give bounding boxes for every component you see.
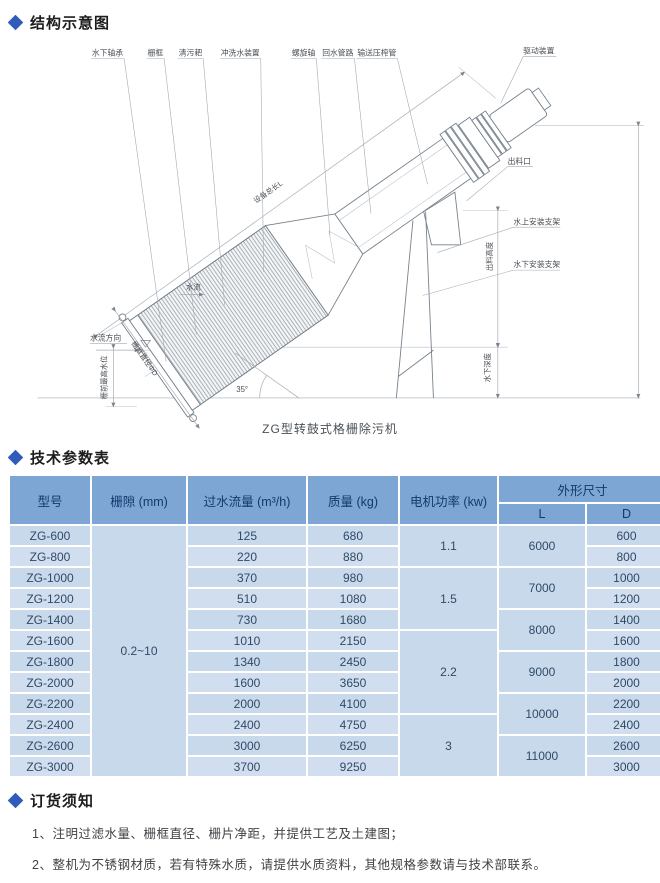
label-flush-water-device: 冲洗水装置	[221, 47, 260, 57]
cell-length: 7000	[499, 568, 585, 608]
dim-underwater-depth-label: 水下深度	[483, 352, 492, 382]
flow-direction-label: 水流方向	[90, 332, 121, 342]
cell-mass: 4100	[308, 694, 398, 713]
cell-model: ZG-600	[10, 526, 90, 545]
reference-lines	[37, 347, 640, 398]
cell-mass: 3650	[308, 673, 398, 692]
label-drive-device: 驱动装置	[523, 46, 554, 56]
cell-diameter: 3000	[587, 757, 660, 776]
section-title-params: 技术参数表	[30, 447, 110, 468]
cell-diameter: 2400	[587, 715, 660, 734]
header-mass: 质量 (kg)	[308, 476, 398, 524]
support-stand	[396, 212, 433, 398]
note-line-1: 1、注明过滤水量、栅框直径、栅片净距，并提供工艺及土建图；	[32, 823, 652, 842]
cell-length: 8000	[499, 610, 585, 650]
angle-label: 35°	[236, 385, 248, 394]
cell-flow: 730	[188, 610, 306, 629]
cell-diameter: 2000	[587, 673, 660, 692]
cell-flow: 1340	[188, 652, 306, 671]
structure-diagram-svg: 设备总长L	[8, 35, 652, 435]
section-title-structure: 结构示意图	[30, 12, 110, 33]
diamond-icon	[8, 15, 24, 31]
cell-length: 11000	[499, 736, 585, 776]
cell-length: 10000	[499, 694, 585, 734]
diamond-icon	[8, 793, 24, 809]
cell-mass: 980	[308, 568, 398, 587]
section-header-ordering: 订货须知	[10, 790, 652, 811]
section-header-structure: 结构示意图	[10, 12, 652, 33]
cell-diameter: 1800	[587, 652, 660, 671]
cell-gap: 0.2~10	[92, 526, 186, 776]
header-motor: 电机功率 (kw)	[400, 476, 497, 524]
header-flow: 过水流量 (m³/h)	[188, 476, 306, 524]
cell-model: ZG-1200	[10, 589, 90, 608]
label-cleaning-rake: 清污耙	[179, 47, 203, 57]
cell-mass: 2450	[308, 652, 398, 671]
cell-mass: 9250	[308, 757, 398, 776]
cell-flow: 3700	[188, 757, 306, 776]
cell-diameter: 2600	[587, 736, 660, 755]
cell-mass: 1080	[308, 589, 398, 608]
cell-motor: 2.2	[400, 631, 497, 713]
cell-motor: 1.5	[400, 568, 497, 629]
cell-mass: 680	[308, 526, 398, 545]
inner-flow-label: 水流	[186, 283, 201, 292]
cell-motor: 1.1	[400, 526, 497, 566]
cell-diameter: 800	[587, 547, 660, 566]
cell-model: ZG-800	[10, 547, 90, 566]
label-return-pipe: 回水管路	[322, 47, 353, 57]
header-size: 外形尺寸	[499, 476, 660, 502]
section-title-ordering: 订货须知	[30, 790, 94, 811]
cell-mass: 6250	[308, 736, 398, 755]
section-header-params: 技术参数表	[10, 447, 652, 468]
label-bracket-above: 水上安装支架	[513, 216, 560, 226]
cell-mass: 1680	[308, 610, 398, 629]
cell-flow: 2000	[188, 694, 306, 713]
cell-model: ZG-1600	[10, 631, 90, 650]
dim-discharge-height-label: 出料高度	[485, 241, 494, 271]
parameters-table: 型号 栅隙 (mm) 过水流量 (m³/h) 质量 (kg) 电机功率 (kw)…	[8, 474, 660, 778]
cell-length: 9000	[499, 652, 585, 692]
table-header-row: 型号 栅隙 (mm) 过水流量 (m³/h) 质量 (kg) 电机功率 (kw)…	[10, 476, 660, 502]
structure-diagram: 设备总长L	[8, 35, 652, 443]
cell-flow: 125	[188, 526, 306, 545]
cell-model: ZG-1800	[10, 652, 90, 671]
label-outlet: 出料口	[508, 156, 531, 166]
label-underwater-bearing: 水下轴承	[92, 47, 123, 57]
label-bracket-below: 水下安装支架	[513, 259, 560, 269]
cell-model: ZG-2200	[10, 694, 90, 713]
cell-mass: 4750	[308, 715, 398, 734]
label-screen-frame: 栅框	[148, 47, 164, 57]
cell-mass: 2150	[308, 631, 398, 650]
cell-diameter: 1600	[587, 631, 660, 650]
label-spiral-shaft: 螺旋轴	[292, 47, 316, 57]
cell-diameter: 1400	[587, 610, 660, 629]
header-diameter: D	[587, 504, 660, 524]
diamond-icon	[8, 450, 24, 466]
cell-model: ZG-1000	[10, 568, 90, 587]
header-length: L	[499, 504, 585, 524]
cell-model: ZG-2400	[10, 715, 90, 734]
max-water-level-label: 栅前最高水位	[100, 356, 109, 400]
cell-diameter: 1000	[587, 568, 660, 587]
header-model: 型号	[10, 476, 90, 524]
cell-motor: 3	[400, 715, 497, 776]
cell-diameter: 2200	[587, 694, 660, 713]
header-gap: 栅隙 (mm)	[92, 476, 186, 524]
cell-flow: 510	[188, 589, 306, 608]
cell-model: ZG-2000	[10, 673, 90, 692]
cell-diameter: 600	[587, 526, 660, 545]
cell-flow: 3000	[188, 736, 306, 755]
dim-total-length-label: 设备总长L	[252, 179, 284, 205]
machine-body	[108, 41, 586, 430]
table-row: ZG-6000.2~101256801.16000600	[10, 526, 660, 545]
cell-mass: 880	[308, 547, 398, 566]
cell-flow: 1600	[188, 673, 306, 692]
cell-model: ZG-3000	[10, 757, 90, 776]
cell-model: ZG-1400	[10, 610, 90, 629]
cell-flow: 2400	[188, 715, 306, 734]
cell-model: ZG-2600	[10, 736, 90, 755]
installation-angle: 35°	[235, 353, 298, 398]
diagram-caption: ZG型转鼓式格栅除污机	[8, 420, 652, 437]
cell-flow: 370	[188, 568, 306, 587]
cell-diameter: 1200	[587, 589, 660, 608]
cell-flow: 220	[188, 547, 306, 566]
note-line-2: 2、整机为不锈钢材质，若有特殊水质，请提供水质资料，其他规格参数请与技术部联系。	[32, 854, 652, 873]
cell-flow: 1010	[188, 631, 306, 650]
ordering-notes: 1、注明过滤水量、栅框直径、栅片净距，并提供工艺及土建图； 2、整机为不锈钢材质…	[32, 823, 652, 873]
label-press-pipe: 输送压榨管	[357, 47, 396, 57]
cell-length: 6000	[499, 526, 585, 566]
